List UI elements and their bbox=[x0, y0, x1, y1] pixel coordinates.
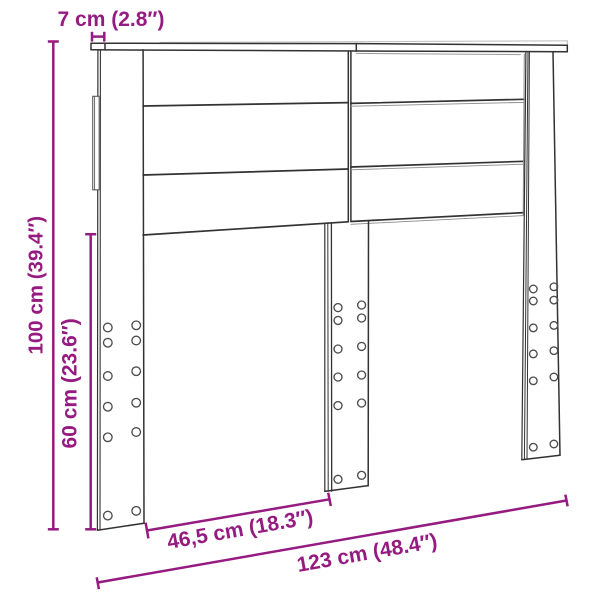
svg-text:7 cm (2.8″): 7 cm (2.8″) bbox=[58, 8, 165, 31]
svg-text:60 cm (23.6″): 60 cm (23.6″) bbox=[59, 318, 82, 448]
svg-text:100 cm (39.4″): 100 cm (39.4″) bbox=[25, 216, 48, 355]
svg-text:46,5 cm (18.3″): 46,5 cm (18.3″) bbox=[165, 506, 315, 554]
svg-text:123 cm (48.4″): 123 cm (48.4″) bbox=[295, 530, 439, 577]
